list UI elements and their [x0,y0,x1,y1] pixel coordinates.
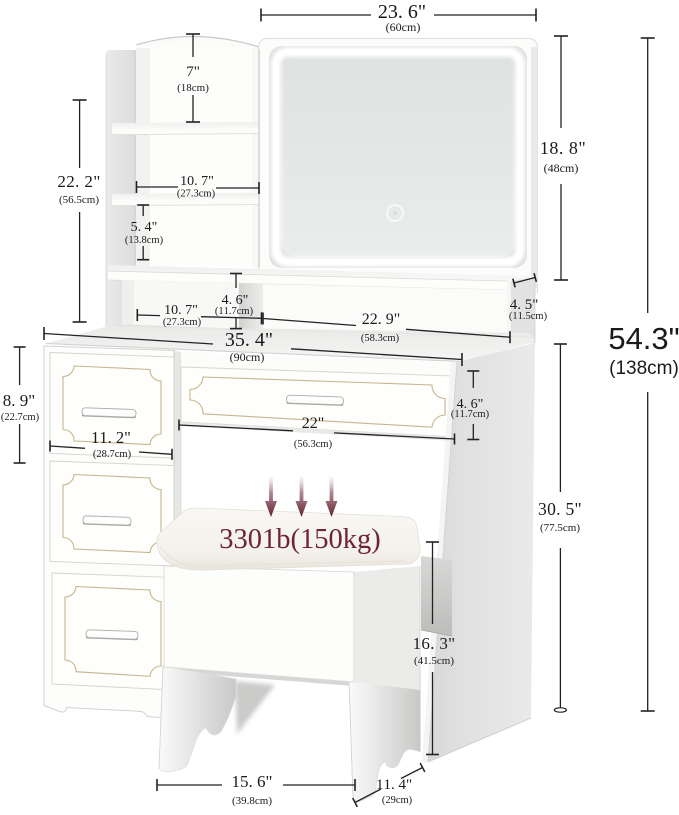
svg-text:(60cm): (60cm) [386,20,421,34]
svg-text:(138cm): (138cm) [609,358,679,379]
svg-text:10. 7": 10. 7" [164,303,198,318]
svg-text:22": 22" [302,415,325,432]
svg-text:(28.7cm): (28.7cm) [93,449,132,460]
svg-text:15. 6": 15. 6" [232,772,273,791]
svg-text:18. 8": 18. 8" [540,138,586,158]
svg-text:(58.3cm): (58.3cm) [361,333,400,344]
svg-text:16. 3": 16. 3" [413,634,456,653]
svg-text:10. 7": 10. 7" [180,174,214,189]
svg-text:11. 4": 11. 4" [376,777,412,793]
svg-text:(11.7cm): (11.7cm) [451,409,490,420]
svg-text:(27.3cm): (27.3cm) [177,189,216,200]
svg-text:(56.3cm): (56.3cm) [294,439,333,450]
svg-text:30. 5": 30. 5" [538,499,582,519]
svg-text:35. 4": 35. 4" [225,329,273,351]
svg-text:(48cm): (48cm) [544,161,579,175]
svg-text:5. 4": 5. 4" [131,220,158,235]
svg-text:7": 7" [186,64,200,80]
svg-text:(22.7cm): (22.7cm) [1,412,40,423]
svg-text:(90cm): (90cm) [230,350,265,364]
svg-text:(29cm): (29cm) [382,795,413,806]
svg-text:(56.5cm): (56.5cm) [59,194,99,206]
svg-text:(11.5cm): (11.5cm) [509,311,548,322]
svg-text:11. 2": 11. 2" [91,428,131,447]
svg-text:(13.8cm): (13.8cm) [125,235,164,246]
svg-text:(41.5cm): (41.5cm) [414,655,454,667]
svg-text:(27.3cm): (27.3cm) [163,317,202,328]
svg-text:(39.8cm): (39.8cm) [232,795,272,807]
svg-text:54.3": 54.3" [608,321,679,356]
svg-text:(77.5cm): (77.5cm) [540,522,580,534]
svg-text:8. 9": 8. 9" [3,391,35,410]
svg-text:22. 9": 22. 9" [362,311,401,328]
svg-text:3301b(150kg): 3301b(150kg) [219,524,380,555]
svg-text:(18cm): (18cm) [177,82,209,94]
svg-text:22. 2": 22. 2" [57,172,100,191]
svg-text:(11.7cm): (11.7cm) [215,306,254,317]
